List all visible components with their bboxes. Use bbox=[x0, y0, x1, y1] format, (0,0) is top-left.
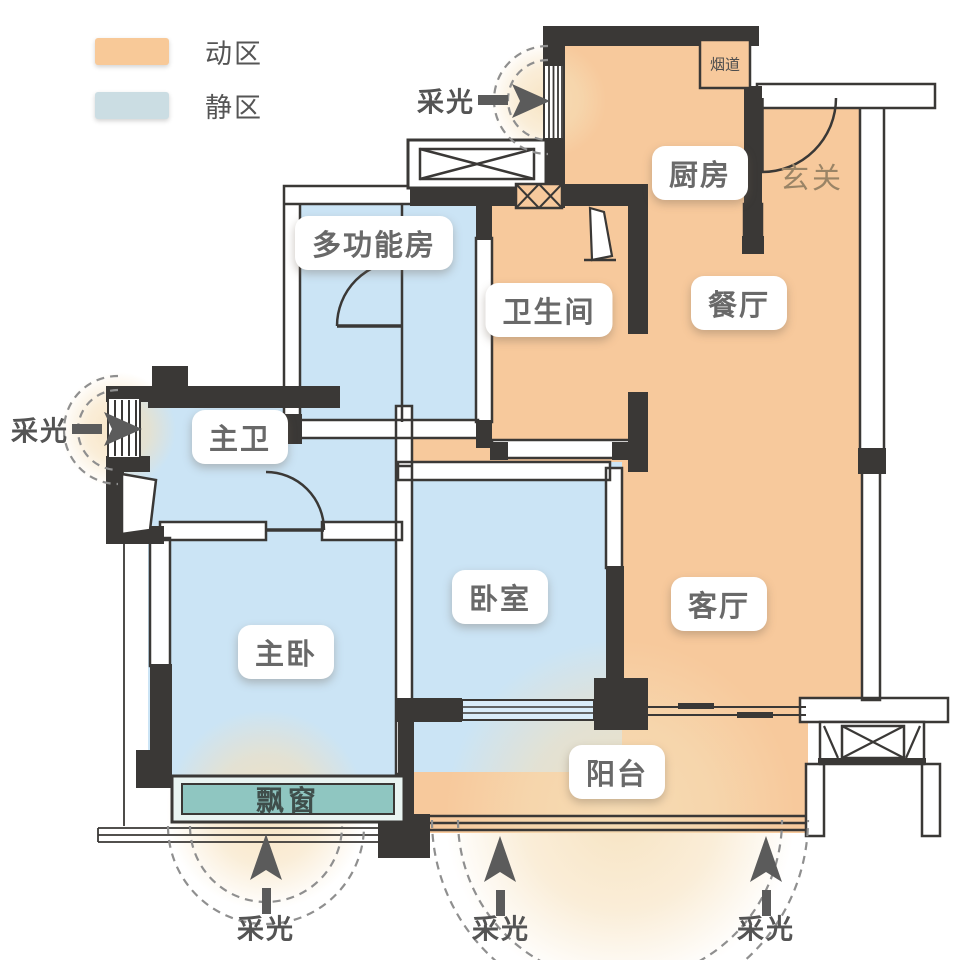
room-label-master-bed: 主卧 bbox=[238, 625, 334, 679]
room-label-balcony: 阳台 bbox=[569, 745, 665, 799]
arrow-stub-top bbox=[478, 95, 508, 105]
legend: 动区 静区 bbox=[95, 32, 263, 140]
arrow-stub-left bbox=[72, 424, 102, 434]
room-label-living: 客厅 bbox=[671, 577, 767, 631]
bedroom-sliding-window bbox=[462, 700, 594, 720]
room-label-multi-function: 多功能房 bbox=[295, 216, 453, 270]
legend-swatch-quiet bbox=[95, 92, 169, 119]
room-label-kitchen: 厨房 bbox=[652, 146, 748, 200]
room-label-master-bath: 主卫 bbox=[192, 410, 288, 464]
room-label-bathroom: 卫生间 bbox=[485, 283, 612, 337]
room-label-bay-window: 飘窗 bbox=[256, 779, 320, 819]
daylight-label-bottom-right: 采光 bbox=[737, 908, 795, 947]
window-box-top bbox=[408, 140, 546, 188]
legend-swatch-active bbox=[95, 38, 169, 65]
legend-label-quiet: 静区 bbox=[205, 86, 263, 125]
hatch-window bbox=[516, 184, 562, 208]
ac-platform bbox=[818, 722, 926, 765]
daylight-label-top: 采光 bbox=[417, 81, 475, 120]
casement-window bbox=[122, 474, 156, 534]
floor-plan-page: 动区 静区 多功能房 厨房 餐厅 卫生间 主卫 主卧 卧室 客厅 阳台 玄关 烟… bbox=[0, 0, 960, 960]
daylight-label-bottom-mid: 采光 bbox=[472, 908, 530, 947]
room-label-hall: 玄关 bbox=[780, 155, 844, 197]
legend-label-active: 动区 bbox=[205, 32, 263, 71]
legend-row-active: 动区 bbox=[95, 32, 263, 71]
floor-plan-svg bbox=[0, 0, 960, 960]
legend-row-quiet: 静区 bbox=[95, 86, 263, 125]
room-label-bedroom: 卧室 bbox=[452, 570, 548, 624]
daylight-label-left: 采光 bbox=[11, 410, 69, 449]
room-label-dining: 餐厅 bbox=[691, 276, 787, 330]
room-label-flue: 烟道 bbox=[710, 54, 740, 75]
daylight-label-bottom-left: 采光 bbox=[237, 908, 295, 947]
